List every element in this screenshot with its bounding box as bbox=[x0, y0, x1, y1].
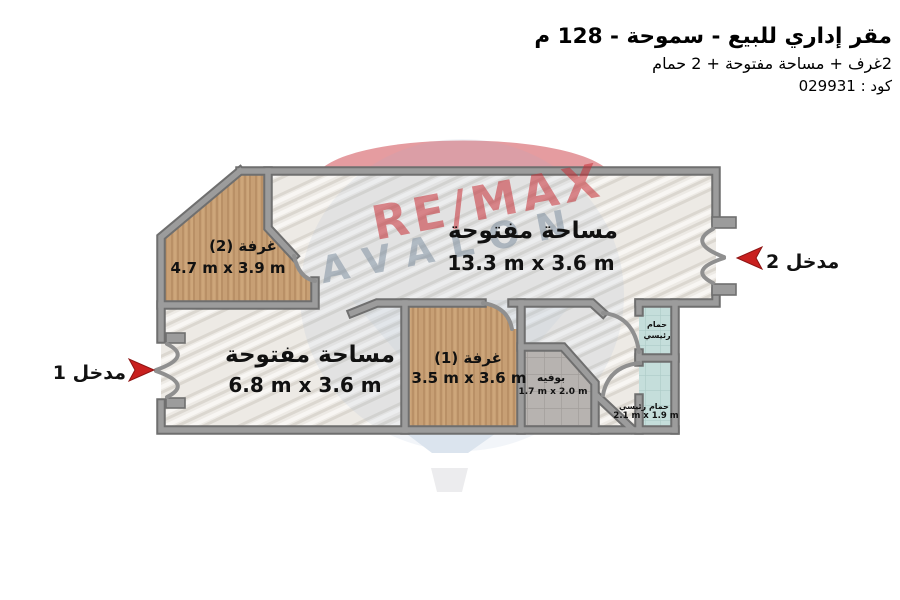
open-space-bottom-dims: 6.8 m x 3.6 m bbox=[205, 374, 405, 397]
buffet-dims: 1.7 m x 2.0 m bbox=[518, 387, 588, 397]
bathroom-bottom-name: حمام رئيسي bbox=[608, 402, 680, 411]
room1-name: غرفة (1) bbox=[398, 350, 538, 367]
bathroom-top-name: حمام رئيسي bbox=[639, 320, 675, 342]
floor-plan-page: RE/MAX AVALON مقر إداري للبيع - سموحة - … bbox=[0, 0, 900, 600]
entrance-1-arrow-icon bbox=[129, 359, 154, 381]
listing-title: مقر إداري للبيع - سموحة - 128 م bbox=[534, 24, 892, 51]
open-space-top-dims: 13.3 m x 3.6 m bbox=[421, 252, 641, 275]
listing-code: كود : 029931 bbox=[534, 77, 892, 96]
listing-subtitle: 2غرف + مساحة مفتوحة + 2 حمام bbox=[534, 54, 892, 74]
open-space-bottom-name: مساحة مفتوحة bbox=[200, 342, 420, 368]
room2-name: غرفة (2) bbox=[173, 238, 313, 255]
entrance-2-arrow-icon bbox=[737, 247, 762, 269]
buffet-name: بوفيه bbox=[521, 372, 581, 384]
bathroom-bottom-dims: 2.1 m x 1.9 m bbox=[608, 412, 684, 422]
room2-dims: 4.7 m x 3.9 m bbox=[158, 260, 298, 277]
balloon-watermark-basket bbox=[431, 468, 468, 492]
entrance-1-label: مدخل 1 bbox=[56, 363, 126, 385]
entrance-2-label: مدخل 2 bbox=[766, 252, 866, 274]
open-space-top-name: مساحة مفتوحة bbox=[423, 218, 643, 244]
listing-header: مقر إداري للبيع - سموحة - 128 م 2غرف + م… bbox=[534, 24, 892, 96]
